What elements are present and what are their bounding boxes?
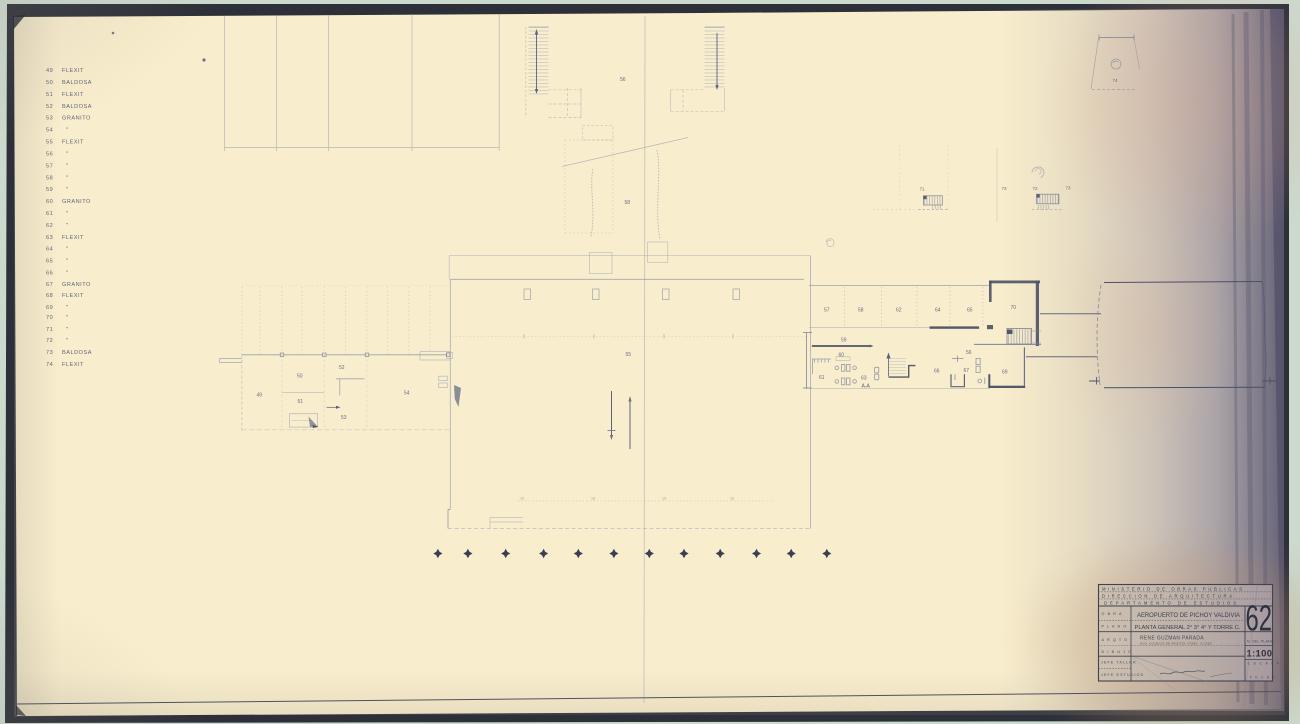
svg-text:P L A N O: P L A N O [1102, 625, 1128, 629]
svg-text:63: 63 [46, 235, 53, 241]
svg-text:": " [66, 164, 69, 170]
svg-text:54: 54 [404, 391, 410, 397]
svg-text:JEFE ESTUDIOS: JEFE ESTUDIOS [1101, 673, 1144, 677]
svg-text:49: 49 [46, 68, 53, 74]
svg-text:": " [66, 152, 69, 158]
svg-text:": " [66, 247, 69, 253]
svg-text:73: 73 [46, 350, 53, 356]
svg-text:74: 74 [46, 362, 53, 368]
svg-text:53: 53 [341, 415, 347, 421]
svg-text:66: 66 [934, 369, 940, 375]
svg-text:ADS. COLEGIO DE ARQTOS. N°599: ADS. COLEGIO DE ARQTOS. N°599 . S-1959 [1140, 642, 1212, 646]
svg-text:E S C A L A: E S C A L A [1248, 662, 1281, 666]
svg-text:FLEXIT: FLEXIT [62, 68, 84, 74]
svg-text:71: 71 [46, 327, 53, 333]
svg-text:70: 70 [1011, 305, 1017, 311]
svg-text:F E C H A: F E C H A [1250, 676, 1276, 680]
svg-text:": " [66, 315, 69, 321]
svg-text:59: 59 [841, 338, 847, 344]
svg-text:58: 58 [858, 308, 864, 314]
svg-text:67: 67 [964, 368, 970, 374]
svg-text:58: 58 [46, 176, 53, 182]
svg-text:13: 13 [730, 497, 734, 501]
svg-text:13: 13 [662, 497, 666, 501]
svg-text:RENE GUZMAN PARADA: RENE GUZMAN PARADA [1140, 636, 1204, 642]
svg-text:JEFE TALLER: JEFE TALLER [1101, 661, 1137, 665]
svg-text:": " [66, 128, 69, 134]
svg-text:62: 62 [46, 223, 53, 229]
svg-text:": " [66, 271, 69, 277]
svg-text:": " [66, 211, 69, 217]
svg-text:62: 62 [1246, 598, 1273, 639]
svg-text:60: 60 [839, 353, 845, 359]
svg-text:72: 72 [1033, 186, 1039, 191]
svg-text:56: 56 [966, 350, 972, 356]
svg-text:71: 71 [920, 187, 926, 192]
svg-text:GRANITO: GRANITO [62, 116, 91, 122]
svg-text:60: 60 [46, 199, 53, 205]
svg-text:50: 50 [46, 80, 53, 86]
svg-text:D I B U J O: D I B U J O [1102, 650, 1133, 654]
svg-text:57: 57 [824, 308, 830, 314]
svg-text:FLEXIT: FLEXIT [62, 293, 84, 299]
svg-text:58: 58 [625, 200, 631, 206]
svg-text:O B R A: O B R A [1102, 612, 1123, 616]
svg-text:73: 73 [1066, 186, 1072, 191]
svg-text:74: 74 [1113, 78, 1119, 83]
svg-text:72: 72 [46, 338, 53, 344]
svg-text:65: 65 [46, 259, 53, 265]
svg-text:55: 55 [626, 352, 632, 358]
svg-text:AEROPUERTO DE PICHOY VALDIVIA: AEROPUERTO DE PICHOY VALDIVIA [1137, 613, 1240, 619]
svg-text:BALDOSA: BALDOSA [62, 80, 92, 86]
svg-text:": " [66, 259, 69, 265]
svg-text:FLEXIT: FLEXIT [62, 235, 84, 241]
svg-text:65: 65 [967, 308, 973, 314]
svg-text:": " [66, 338, 69, 344]
svg-text:13: 13 [520, 497, 524, 501]
svg-text:MINISTERIO DE OBRAS PUBLICAS: MINISTERIO DE OBRAS PUBLICAS [1102, 586, 1242, 591]
svg-text:59: 59 [46, 187, 53, 193]
svg-text:63: 63 [861, 376, 867, 382]
svg-text:51: 51 [46, 92, 53, 98]
svg-text:52: 52 [46, 104, 53, 110]
svg-text:1:100: 1:100 [1247, 649, 1273, 660]
svg-text:70: 70 [46, 315, 53, 321]
svg-text:FLEXIT: FLEXIT [62, 92, 84, 98]
svg-text:64: 64 [46, 247, 53, 253]
svg-text:69: 69 [46, 305, 53, 311]
svg-text:67: 67 [46, 282, 53, 288]
svg-text:": " [66, 305, 69, 311]
svg-text:DEPARTAMENTO DE ESTUDIOS: DEPARTAMENTO DE ESTUDIOS [1104, 601, 1236, 606]
svg-text:49: 49 [257, 393, 263, 399]
svg-text:61: 61 [819, 375, 825, 381]
svg-text:68: 68 [46, 293, 53, 299]
svg-text:54: 54 [46, 128, 53, 134]
svg-text:13: 13 [591, 497, 595, 501]
svg-text:55: 55 [46, 140, 53, 146]
svg-text:": " [66, 327, 69, 333]
svg-text:62: 62 [896, 308, 902, 314]
svg-text:50: 50 [297, 374, 303, 380]
svg-text:FLEXIT: FLEXIT [62, 362, 84, 368]
svg-text:52: 52 [339, 365, 345, 371]
svg-text:GRANITO: GRANITO [62, 282, 91, 288]
svg-text:PLANTA GENERAL 2° 3° 4° Y TORR: PLANTA GENERAL 2° 3° 4° Y TORRE C. [1135, 625, 1241, 631]
svg-text:BALDOSA: BALDOSA [62, 104, 92, 110]
svg-text:FLEXIT: FLEXIT [62, 140, 84, 146]
svg-text:A R Q T O: A R Q T O [1102, 638, 1129, 642]
svg-text:51: 51 [298, 399, 304, 405]
svg-text:56: 56 [46, 152, 53, 158]
svg-text:69: 69 [1002, 370, 1008, 376]
svg-text:57: 57 [46, 164, 53, 170]
svg-text:BALDOSA: BALDOSA [62, 350, 92, 356]
svg-text:GRANITO: GRANITO [62, 199, 91, 205]
svg-text:61: 61 [46, 211, 53, 217]
svg-text:": " [66, 223, 69, 229]
svg-text:53: 53 [46, 116, 53, 122]
svg-text:64: 64 [935, 308, 941, 314]
svg-text:": " [66, 187, 69, 193]
svg-text:": " [66, 176, 69, 182]
svg-text:66: 66 [46, 271, 53, 277]
svg-text:73: 73 [1002, 186, 1008, 191]
svg-text:56: 56 [620, 77, 626, 83]
